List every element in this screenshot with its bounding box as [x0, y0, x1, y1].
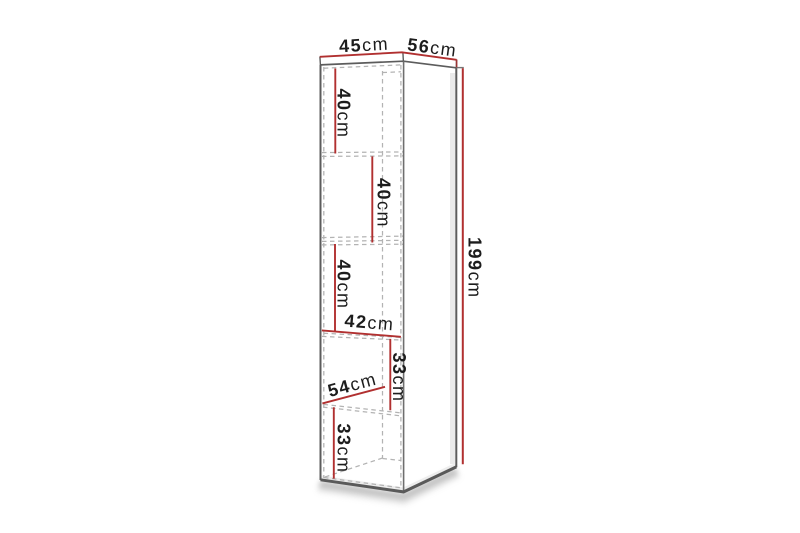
svg-text:40cm: 40cm	[333, 259, 353, 309]
svg-text:199cm: 199cm	[465, 237, 485, 299]
svg-text:42cm: 42cm	[344, 311, 395, 335]
svg-text:45cm: 45cm	[338, 34, 389, 57]
svg-text:40cm: 40cm	[373, 178, 393, 228]
svg-text:33cm: 33cm	[389, 352, 409, 402]
svg-text:33cm: 33cm	[334, 423, 354, 473]
svg-text:56cm: 56cm	[406, 34, 458, 60]
svg-text:40cm: 40cm	[333, 88, 353, 138]
